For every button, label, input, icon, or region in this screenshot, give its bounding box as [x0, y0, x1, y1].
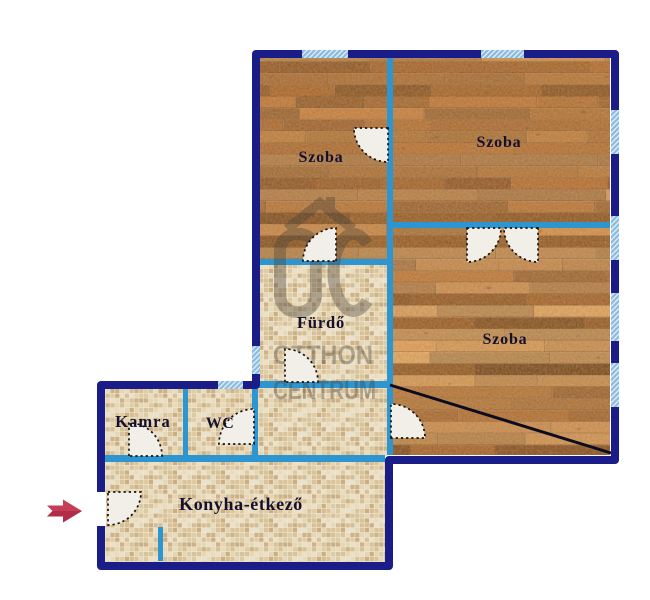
svg-text:Konyha-étkező: Konyha-étkező: [179, 494, 303, 514]
svg-text:Kamra: Kamra: [115, 412, 170, 431]
svg-text:Szoba: Szoba: [477, 134, 522, 151]
svg-text:Fürdő: Fürdő: [297, 313, 345, 332]
svg-text:Szoba: Szoba: [299, 149, 344, 166]
svg-text:Szoba: Szoba: [483, 331, 528, 348]
svg-text:WC: WC: [206, 415, 235, 432]
